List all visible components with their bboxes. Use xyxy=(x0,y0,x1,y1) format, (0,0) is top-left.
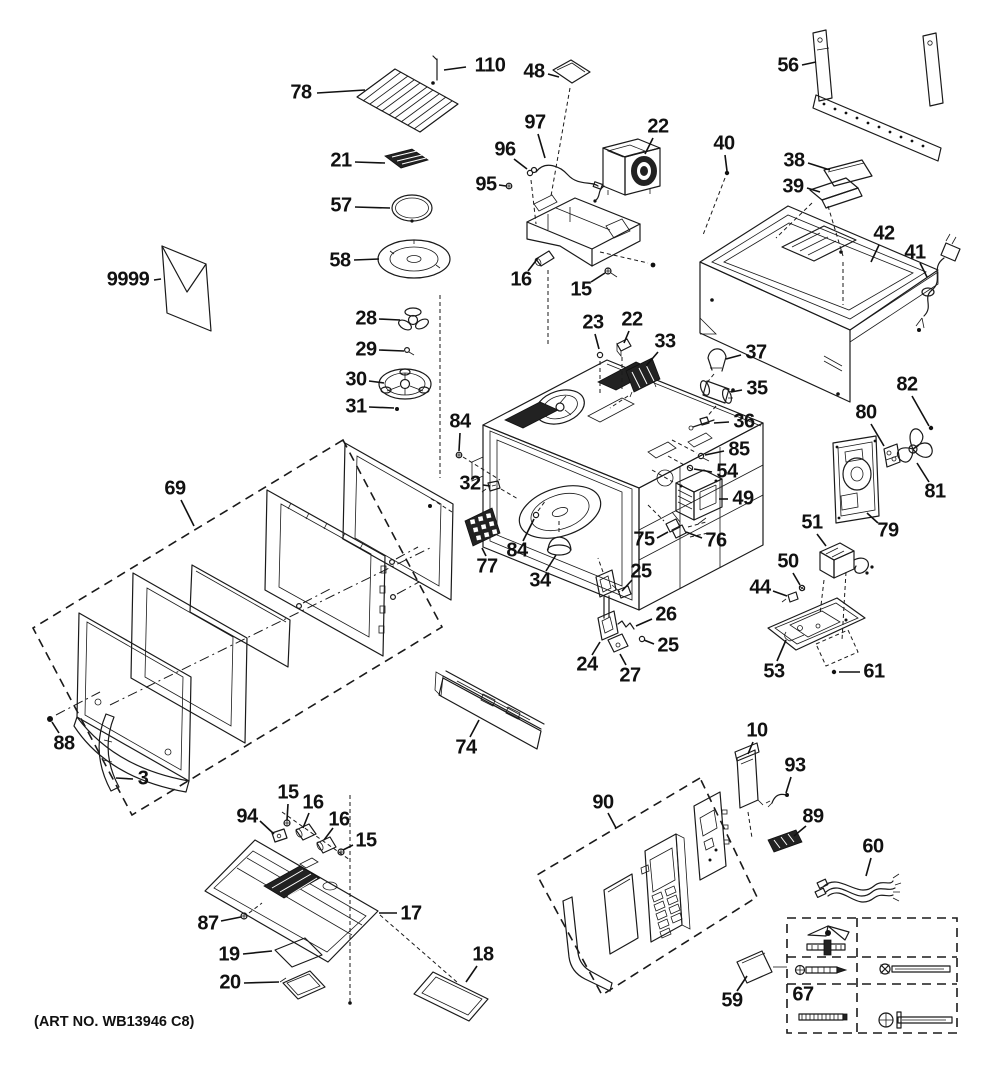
callout-61: 61 xyxy=(863,661,884,684)
callout-60: 60 xyxy=(862,836,883,859)
callout-layer: 1107848569796952240383942412157589999161… xyxy=(0,0,1000,1065)
callout-77: 77 xyxy=(476,556,497,579)
callout-10: 10 xyxy=(746,720,767,743)
callout-93: 93 xyxy=(784,755,805,778)
callout-16a: 16 xyxy=(510,269,531,292)
callout-22a: 22 xyxy=(647,116,668,139)
callout-34: 34 xyxy=(529,570,550,593)
callout-79: 79 xyxy=(877,520,898,543)
callout-58: 58 xyxy=(329,250,350,273)
callout-33: 33 xyxy=(654,331,675,354)
callout-57: 57 xyxy=(330,195,351,218)
callout-19: 19 xyxy=(218,944,239,967)
callout-15b: 15 xyxy=(277,782,298,805)
callout-81: 81 xyxy=(924,481,945,504)
callout-15c: 15 xyxy=(355,830,376,853)
callout-17: 17 xyxy=(400,903,421,926)
callout-44: 44 xyxy=(749,577,770,600)
callout-110: 110 xyxy=(475,55,506,78)
callout-95: 95 xyxy=(475,174,496,197)
parts-diagram-page: 1107848569796952240383942412157589999161… xyxy=(0,0,1000,1065)
callout-25b: 25 xyxy=(657,635,678,658)
callout-35: 35 xyxy=(746,378,767,401)
callout-29: 29 xyxy=(355,339,376,362)
callout-67: 67 xyxy=(792,984,813,1007)
callout-41: 41 xyxy=(904,242,925,265)
callout-16b: 16 xyxy=(302,792,323,815)
callout-16c: 16 xyxy=(328,809,349,832)
callout-90: 90 xyxy=(592,792,613,815)
callout-85: 85 xyxy=(728,439,749,462)
callout-15a: 15 xyxy=(570,279,591,302)
callout-69: 69 xyxy=(164,478,185,501)
callout-78: 78 xyxy=(290,82,311,105)
callout-51: 51 xyxy=(801,512,822,535)
callout-54: 54 xyxy=(716,461,737,484)
callout-38: 38 xyxy=(783,150,804,173)
callout-26: 26 xyxy=(655,604,676,627)
callout-96: 96 xyxy=(494,139,515,162)
callout-36: 36 xyxy=(733,411,754,434)
callout-25a: 25 xyxy=(630,561,651,584)
callout-37: 37 xyxy=(745,342,766,365)
callout-32: 32 xyxy=(459,473,480,496)
callout-31: 31 xyxy=(345,396,366,419)
callout-89: 89 xyxy=(802,806,823,829)
callout-84a: 84 xyxy=(449,411,470,434)
callout-20: 20 xyxy=(219,972,240,995)
callout-3: 3 xyxy=(138,768,149,791)
callout-40: 40 xyxy=(713,133,734,156)
callout-94: 94 xyxy=(236,806,257,829)
callout-39: 39 xyxy=(782,176,803,199)
art-number-label: (ART NO. WB13946 C8) xyxy=(34,1014,194,1030)
callout-59: 59 xyxy=(721,990,742,1013)
callout-76: 76 xyxy=(705,530,726,553)
callout-50: 50 xyxy=(777,551,798,574)
callout-18: 18 xyxy=(472,944,493,967)
callout-82: 82 xyxy=(896,374,917,397)
callout-53: 53 xyxy=(763,661,784,684)
callout-9999: 9999 xyxy=(107,269,150,292)
callout-30: 30 xyxy=(345,369,366,392)
callout-23: 23 xyxy=(582,312,603,335)
callout-97: 97 xyxy=(524,112,545,135)
callout-27: 27 xyxy=(619,665,640,688)
callout-24: 24 xyxy=(576,654,597,677)
callout-75: 75 xyxy=(633,529,654,552)
callout-42: 42 xyxy=(873,223,894,246)
callout-84b: 84 xyxy=(506,540,527,563)
callout-48: 48 xyxy=(523,61,544,84)
callout-88: 88 xyxy=(53,733,74,756)
callout-56: 56 xyxy=(777,55,798,78)
callout-21: 21 xyxy=(330,150,351,173)
callout-28: 28 xyxy=(355,308,376,331)
callout-87: 87 xyxy=(197,913,218,936)
callout-74: 74 xyxy=(455,737,476,760)
callout-80: 80 xyxy=(855,402,876,425)
callout-22b: 22 xyxy=(621,309,642,332)
callout-49: 49 xyxy=(732,488,753,511)
